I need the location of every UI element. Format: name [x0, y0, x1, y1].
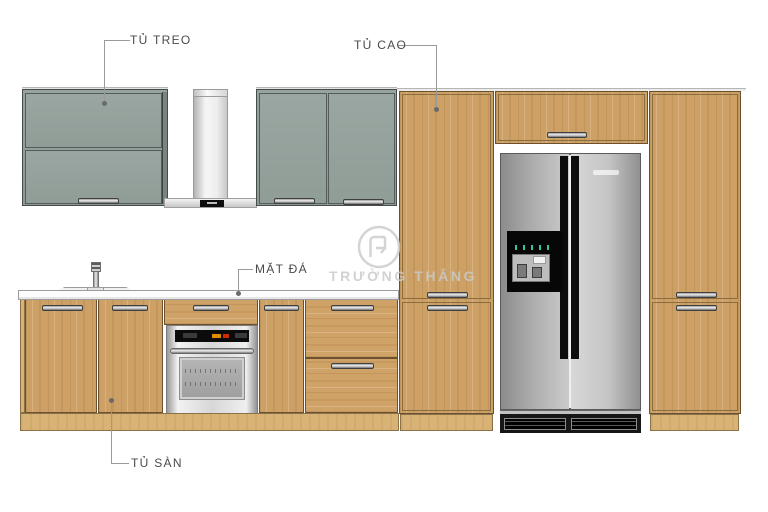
range-hood-control-panel	[200, 200, 224, 207]
wall-cabinet-right-door-right	[328, 93, 395, 204]
tall-cabinet-left-toekick	[400, 414, 493, 431]
wall-cabinet-right-handle-left	[274, 198, 315, 204]
range-hood-chimney	[193, 89, 228, 199]
tall-cabinet-left-lower-door	[402, 302, 491, 411]
leader-dot	[434, 107, 439, 112]
wall-cabinet-left-door-top	[25, 93, 162, 148]
watermark-text: TRƯỜNG THẮNG	[329, 268, 477, 284]
leader-line	[104, 40, 130, 41]
range-hood-control-slot	[207, 202, 217, 204]
oven-door-window	[179, 357, 245, 400]
wall-cabinet-right-handle-right	[343, 199, 384, 205]
base-door-1-handle	[42, 305, 83, 311]
tall-cabinet-right-toekick	[650, 414, 739, 431]
annotation-tu-cao: TỦ CAO	[354, 38, 407, 52]
base-door-3	[259, 299, 304, 413]
oven-display-segment	[235, 333, 247, 338]
base-toekick	[20, 413, 399, 431]
dispenser-ice-tray-icon	[533, 256, 546, 264]
leader-line	[238, 269, 253, 270]
annotation-tu-san: TỦ SÀN	[131, 456, 183, 470]
dispenser-cup-icon	[532, 267, 542, 278]
above-oven-drawer-handle	[193, 305, 229, 311]
tall-cabinet-left	[399, 91, 494, 414]
wall-cabinet-left-side-panel	[162, 92, 167, 204]
base-door-3-handle	[264, 305, 299, 311]
oven-control-panel	[175, 330, 249, 342]
countertop	[18, 290, 399, 300]
dispenser-recess	[512, 254, 550, 282]
above-fridge-cabinet-handle	[547, 132, 587, 138]
tall-cabinet-left-handle-upper	[427, 292, 468, 298]
annotation-mat-da: MẶT ĐÁ	[255, 262, 308, 276]
fridge-vent-grille-right	[571, 418, 637, 430]
leader-dot	[102, 101, 107, 106]
wall-cabinet-left-door-bottom	[25, 150, 162, 204]
fridge-dispenser	[507, 231, 563, 292]
wall-cabinet-left-handle	[78, 198, 119, 204]
oven-window-ticks	[185, 382, 240, 386]
leader-line	[436, 45, 437, 108]
leader-dot	[236, 291, 241, 296]
leader-line	[104, 40, 105, 103]
tall-cabinet-right-handle-upper	[676, 292, 717, 298]
dispenser-led	[515, 245, 517, 250]
leader-line	[238, 269, 239, 292]
wall-cabinet-right	[256, 89, 397, 206]
base-drawer-2-handle	[331, 363, 374, 369]
kitchen-elevation-diagram: TỦ TREO TỦ CAO MẶT ĐÁ TỦ SÀN TRƯỜNG THẮN…	[0, 0, 768, 512]
oven-door-handle	[170, 348, 254, 354]
dispenser-cup-icon	[517, 264, 527, 278]
tall-cabinet-right-handle-lower	[676, 305, 717, 311]
oven-display-segment	[183, 333, 197, 338]
built-in-oven	[166, 325, 258, 414]
fridge-vent-grille-left	[504, 418, 566, 430]
base-door-2	[98, 299, 163, 413]
above-oven-drawer	[164, 299, 258, 325]
fridge-handle-right	[571, 156, 579, 359]
above-fridge-cabinet	[495, 91, 648, 144]
dispenser-led	[547, 245, 549, 250]
wall-cabinet-right-door-left	[259, 93, 327, 204]
base-drawer-2	[305, 358, 398, 413]
base-door-2-handle	[112, 305, 148, 311]
tall-cabinet-right	[649, 91, 741, 414]
leader-line	[111, 463, 129, 464]
fridge-door-right	[570, 153, 641, 410]
dispenser-led	[539, 245, 541, 250]
oven-display-red	[223, 334, 229, 338]
tall-cabinet-right-lower-door	[652, 302, 738, 411]
fridge-kick-plate	[500, 414, 641, 433]
fridge-brand-mark	[593, 170, 619, 175]
annotation-tu-treo: TỦ TREO	[130, 33, 192, 47]
leader-dot	[109, 398, 114, 403]
tall-cabinet-left-handle-lower	[427, 305, 468, 311]
leader-line	[111, 403, 112, 464]
base-door-1	[25, 299, 97, 413]
tall-cabinet-right-upper-door	[652, 94, 738, 299]
truong-thang-monogram-icon	[356, 224, 402, 270]
refrigerator	[500, 153, 641, 433]
oven-window-ticks	[185, 369, 240, 373]
base-drawer-1-handle	[331, 305, 374, 311]
wall-cabinet-left	[22, 89, 168, 206]
dispenser-led	[523, 245, 525, 250]
range-hood-chimney-cap	[194, 90, 227, 97]
base-drawer-1	[305, 299, 398, 358]
oven-display-orange	[212, 334, 221, 338]
dispenser-led	[531, 245, 533, 250]
